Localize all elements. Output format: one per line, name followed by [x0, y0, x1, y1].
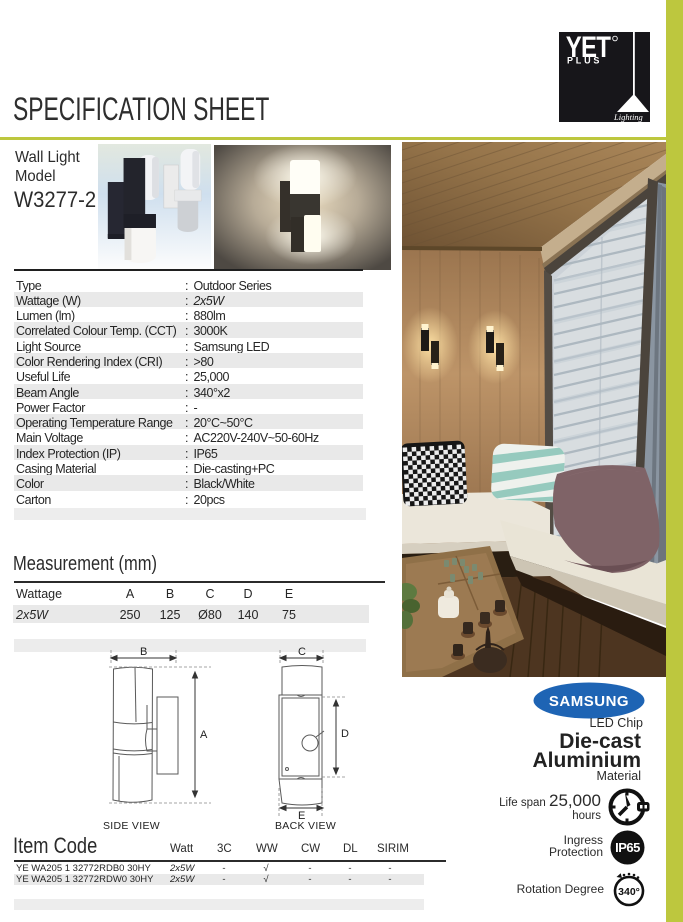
svg-text:B: B [140, 646, 147, 658]
svg-text:Lighting: Lighting [613, 112, 643, 122]
svg-text:C: C [298, 646, 306, 658]
svg-text:SAMSUNG: SAMSUNG [549, 693, 629, 710]
svg-text:PLUS: PLUS [567, 56, 602, 66]
svg-text:BACK VIEW: BACK VIEW [275, 820, 336, 832]
svg-text:D: D [341, 728, 349, 740]
svg-text:SIDE VIEW: SIDE VIEW [103, 820, 160, 832]
svg-text:IP65: IP65 [615, 840, 640, 855]
svg-text:340°: 340° [618, 886, 640, 898]
svg-text:A: A [200, 729, 208, 741]
